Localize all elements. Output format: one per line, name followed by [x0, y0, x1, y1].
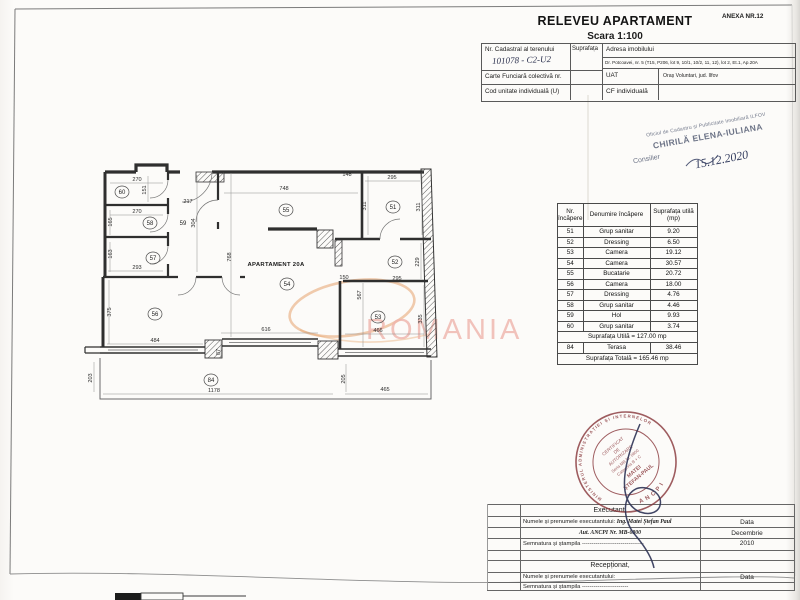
header-suprafata: Suprafața utilă (mp): [650, 204, 697, 227]
semnatura-label: Semnatura și ștampila: [523, 541, 580, 547]
room-cell: 3.74: [650, 321, 697, 332]
room-cell: Dressing: [583, 237, 650, 248]
room-areas-table: Nr. încăpere Denumire încăpere Suprafața…: [557, 203, 698, 365]
room-cell: Camera: [583, 279, 650, 290]
room-cell: 51: [558, 227, 584, 238]
room-cell: 20.72: [650, 269, 697, 280]
data-label: Data: [700, 519, 794, 526]
dimension-label: 87: [216, 349, 222, 355]
receptionat-name-label: Numele și prenumele executantului:: [523, 574, 615, 580]
header-denumire: Denumire încăpere: [583, 204, 650, 227]
uat-label: UAT: [606, 72, 618, 79]
room-cell: Hol: [583, 311, 650, 322]
paper-crease: [587, 95, 589, 220]
terasa-area: 38.46: [650, 343, 697, 354]
aut-ancpi: Aut. ANCPI Nr. MB-0800: [520, 530, 700, 536]
dimension-label: 465: [380, 387, 389, 393]
room-number: 52: [392, 260, 399, 266]
room-cell: Grup sanitar: [583, 227, 650, 238]
room-row: 57Dressing4.76: [558, 290, 698, 301]
receptionat-heading: Recepționat,: [520, 562, 700, 569]
room-row: 53Camera19.12: [558, 248, 698, 259]
room-row: 58Grup sanitar4.46: [558, 300, 698, 311]
scale-bar: [115, 593, 246, 600]
room-cell: 59: [558, 311, 584, 322]
cadastral-table: Nr. Cadastral al terenului 101078 - C2-U…: [481, 43, 796, 102]
dimension-label: 165: [108, 217, 114, 226]
room-cell: 53: [558, 248, 584, 259]
room-row: 59Hol9.93: [558, 311, 698, 322]
room-row: 56Camera18.00: [558, 279, 698, 290]
room-cell: Bucatarie: [583, 269, 650, 280]
room-cell: 54: [558, 258, 584, 269]
carte-funciara-label: Carte Funciară colectivă nr.: [485, 73, 562, 80]
dimension-label: 270: [132, 177, 141, 183]
executant-name-line: Numele și prenumele executantului: Ing. …: [523, 519, 672, 525]
data-label-2: Data: [700, 574, 794, 581]
dimension-label: 163: [108, 249, 114, 258]
dimension-label: 484: [150, 338, 159, 344]
dimension-label: 148: [342, 172, 351, 178]
cf-label: CF individuală: [606, 88, 648, 95]
room-number: 51: [390, 205, 397, 211]
room-row: 52Dressing6.50: [558, 237, 698, 248]
suprafata-totala-total: Suprafața Totală = 165.46 mp: [558, 354, 698, 365]
terasa-row: 84 Terasa 38.46: [558, 343, 698, 354]
dimension-label: 466: [373, 328, 382, 334]
room-cell: 56: [558, 279, 584, 290]
room-table-body: 51Grup sanitar9.2052Dressing6.5053Camera…: [558, 227, 698, 332]
room-cell: 19.12: [650, 248, 697, 259]
room-row: 55Bucatarie20.72: [558, 269, 698, 280]
dimension-label: 295: [387, 175, 396, 181]
signature-dotted-line: --------------------------------: [582, 541, 644, 547]
room-number: 56: [152, 312, 159, 318]
room-cell: 9.20: [650, 227, 697, 238]
dimension-label: 768: [227, 252, 233, 261]
dimension-label: 311: [416, 203, 422, 212]
adresa-value: Dr. Potcoavei, nr. 5 (T15, P206, lot 9, …: [605, 60, 758, 65]
suprafata-label: Suprafața: [572, 46, 598, 52]
plan-walls: 2701512172701653041632933754847487681482…: [85, 165, 437, 399]
romania-watermark: ROMANIA: [286, 271, 523, 346]
semnatura-line-2: Semnatura și ștampila ------------------…: [523, 584, 628, 590]
room-cell: 52: [558, 237, 584, 248]
room-number: 84: [208, 378, 215, 384]
cod-unitate-label: Cod unitate individuală (U): [485, 88, 559, 95]
room-number: 54: [284, 282, 291, 288]
suprafata-totala-row: Suprafața Totală = 165.46 mp: [558, 354, 698, 365]
room-number: 57: [150, 256, 157, 262]
dimension-label: 205: [341, 374, 347, 383]
uat-value: Oraș Voluntari, jud. Ilfov: [663, 73, 718, 79]
room-cell: 4.46: [650, 300, 697, 311]
room-cell: 6.50: [650, 237, 697, 248]
room-cell: 30.57: [650, 258, 697, 269]
room-cell: 18.00: [650, 279, 697, 290]
room-table-header: Nr. încăpere Denumire încăpere Suprafața…: [558, 204, 698, 227]
dimension-label: 304: [191, 218, 197, 227]
semnatura-label-2: Semnatura și ștampila: [523, 584, 580, 590]
dimension-label: 616: [261, 327, 270, 333]
data-year: 2010: [700, 540, 794, 547]
room-cell: Dressing: [583, 290, 650, 301]
room-cell: Grup sanitar: [583, 300, 650, 311]
executant-name-label: Numele și prenumele executantului:: [523, 519, 615, 525]
room-row: 60Grup sanitar3.74: [558, 321, 698, 332]
signature-dotted-line-2: ------------------------: [582, 584, 628, 590]
apartment-label: APARTAMENT 20A: [248, 262, 305, 268]
scanned-document-page: ROMANIA: [0, 0, 800, 600]
suprafata-utila-row: Suprafața Utilă = 127.00 mp: [558, 332, 698, 343]
adresa-label: Adresa imobilului: [606, 46, 654, 53]
room-row: 54Camera30.57: [558, 258, 698, 269]
nr-cadastral-handwritten: 101078 - C2-U2: [492, 54, 551, 66]
dimension-label: 375: [107, 307, 113, 316]
room-cell: 4.76: [650, 290, 697, 301]
dimension-label: 150: [339, 275, 348, 281]
dimension-label: 270: [132, 209, 141, 215]
room-number: 59: [180, 221, 187, 227]
terasa-name: Terasa: [583, 343, 650, 354]
watermark-text: ROMANIA: [366, 314, 522, 346]
dimension-label: 311: [362, 202, 368, 211]
room-cell: Camera: [583, 258, 650, 269]
room-row: 51Grup sanitar9.20: [558, 227, 698, 238]
room-number: 53: [375, 315, 382, 321]
dimension-label: 229: [415, 257, 421, 266]
room-cell: 58: [558, 300, 584, 311]
scale-label: Scara 1:100: [505, 31, 725, 42]
dimension-label: 567: [357, 290, 363, 299]
semnatura-line: Semnatura și ștampila ------------------…: [523, 541, 644, 547]
nr-cadastral-label: Nr. Cadastral al terenului: [485, 46, 554, 53]
room-cell: 55: [558, 269, 584, 280]
header-nr: Nr. încăpere: [558, 204, 584, 227]
room-cell: Camera: [583, 248, 650, 259]
room-cell: 60: [558, 321, 584, 332]
dimension-label: 335: [418, 314, 424, 323]
room-cell: 57: [558, 290, 584, 301]
dimension-label: 151: [142, 185, 148, 194]
data-month: Decembrie: [700, 530, 794, 537]
room-number: 58: [147, 221, 154, 227]
executant-heading: Executant,: [520, 507, 700, 514]
suprafata-utila-total: Suprafața Utilă = 127.00 mp: [558, 332, 698, 343]
dimension-label: 1178: [208, 388, 220, 394]
dimension-label: 293: [132, 265, 141, 271]
executant-name-value: Ing. Matei Ștefan Paul: [617, 519, 672, 525]
dimension-label: 217: [183, 199, 192, 205]
room-cell: Grup sanitar: [583, 321, 650, 332]
anexa-label: ANEXA NR.12: [722, 13, 763, 20]
dimension-label: 748: [279, 186, 288, 192]
dimension-label: 295: [392, 276, 401, 282]
page-title: RELEVEU APARTAMENT: [505, 14, 725, 28]
room-number: 60: [119, 190, 126, 196]
room-number: 55: [283, 208, 290, 214]
dimension-label: 203: [88, 373, 94, 382]
terasa-nr: 84: [558, 343, 584, 354]
room-cell: 9.93: [650, 311, 697, 322]
executant-table: Executant, Numele și prenumele executant…: [487, 504, 795, 590]
